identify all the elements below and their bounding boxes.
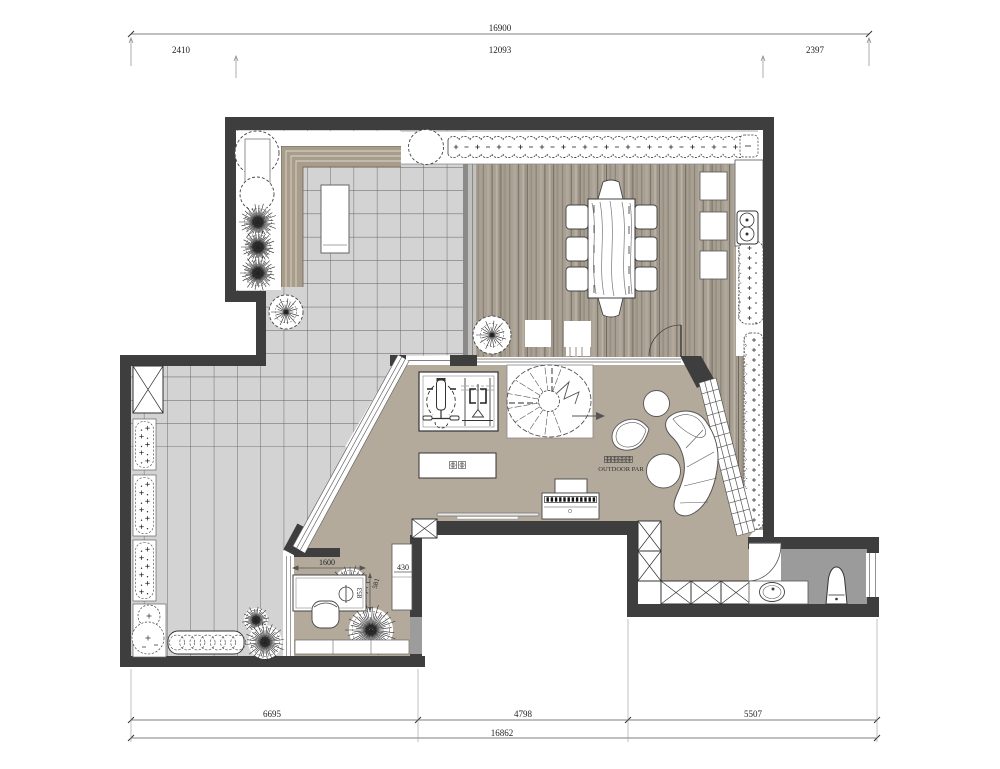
svg-text:16900: 16900 xyxy=(489,23,512,33)
svg-text:16862: 16862 xyxy=(491,728,514,738)
svg-text:2397: 2397 xyxy=(806,45,825,55)
svg-text:4798: 4798 xyxy=(514,709,533,719)
svg-text:430: 430 xyxy=(397,563,409,572)
svg-text:853: 853 xyxy=(356,587,364,598)
svg-text:12093: 12093 xyxy=(489,45,512,55)
svg-text:5507: 5507 xyxy=(744,709,763,719)
svg-text:6695: 6695 xyxy=(263,709,282,719)
svg-text:1600: 1600 xyxy=(319,558,335,567)
svg-text:2410: 2410 xyxy=(172,45,191,55)
svg-text:OUTDOOR PAR: OUTDOOR PAR xyxy=(598,466,644,473)
